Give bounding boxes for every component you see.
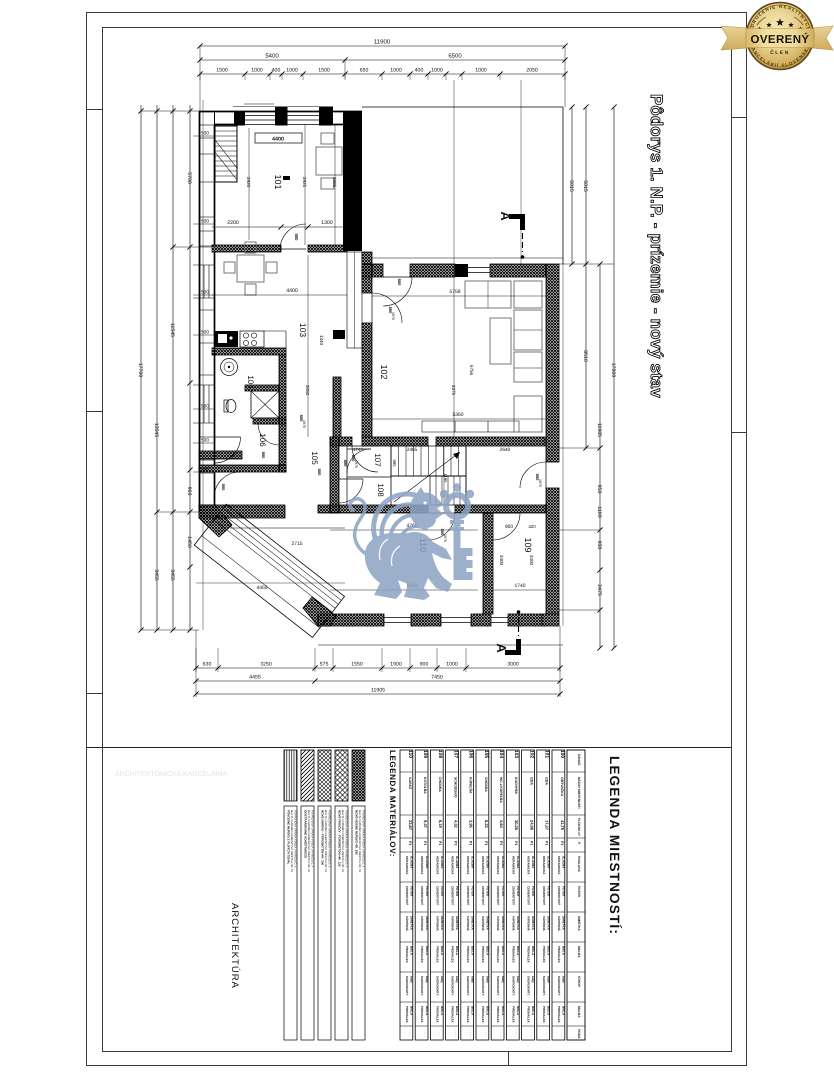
svg-text:POTER: POTER bbox=[470, 886, 474, 897]
svg-text:BIELA: BIELA bbox=[470, 946, 474, 956]
svg-text:P1: P1 bbox=[514, 841, 518, 845]
svg-text:BIELA: BIELA bbox=[516, 1006, 520, 1016]
svg-text:KERAMICKÁ: KERAMICKÁ bbox=[435, 856, 439, 875]
svg-text:500: 500 bbox=[329, 114, 334, 122]
svg-text:BIELA: BIELA bbox=[410, 1006, 414, 1016]
svg-text:420: 420 bbox=[528, 524, 536, 529]
svg-text:107: 107 bbox=[373, 453, 382, 467]
svg-text:· · · ·: · · · · bbox=[484, 1030, 488, 1037]
svg-text:POTER: POTER bbox=[425, 886, 429, 897]
svg-text:3455: 3455 bbox=[153, 569, 159, 581]
svg-text:11905: 11905 bbox=[371, 688, 385, 694]
svg-text:BIELA: BIELA bbox=[562, 946, 566, 956]
svg-text:SADROKART.: SADROKART. bbox=[557, 976, 561, 996]
svg-text:1500: 1500 bbox=[318, 68, 330, 74]
svg-text:3375: 3375 bbox=[451, 385, 456, 396]
svg-text:1900: 1900 bbox=[390, 662, 402, 668]
svg-text:800: 800 bbox=[294, 234, 299, 242]
svg-text:biely: biely bbox=[470, 976, 474, 983]
svg-text:CEMENTOVÝ: CEMENTOVÝ bbox=[527, 886, 531, 905]
svg-text:biely: biely bbox=[546, 976, 550, 983]
svg-text:KERAMICKÁ: KERAMICKÁ bbox=[542, 856, 546, 875]
svg-text:P1: P1 bbox=[438, 841, 442, 845]
svg-text:104: 104 bbox=[246, 375, 255, 389]
svg-text:17000: 17000 bbox=[610, 363, 616, 378]
svg-text:PREMALEX: PREMALEX bbox=[527, 1006, 531, 1023]
svg-text:P1: P1 bbox=[469, 841, 473, 845]
svg-text:4400: 4400 bbox=[272, 137, 284, 143]
svg-text:3455: 3455 bbox=[169, 569, 175, 581]
svg-text:800: 800 bbox=[221, 484, 226, 491]
svg-text:PREMALEX: PREMALEX bbox=[435, 946, 439, 963]
svg-text:4450: 4450 bbox=[256, 585, 267, 591]
svg-text:5400: 5400 bbox=[265, 53, 279, 60]
svg-text:· · · ·: · · · · bbox=[560, 1030, 564, 1037]
svg-text:OMIETKA: OMIETKA bbox=[562, 916, 566, 931]
svg-text:BIELA: BIELA bbox=[546, 1006, 550, 1016]
svg-text:500: 500 bbox=[201, 404, 209, 410]
svg-text:KERAMICKÁ: KERAMICKÁ bbox=[405, 856, 409, 875]
svg-text:biely: biely bbox=[486, 976, 490, 983]
svg-text:500: 500 bbox=[201, 330, 209, 336]
svg-text:105: 105 bbox=[483, 750, 489, 759]
svg-text:575: 575 bbox=[320, 662, 329, 668]
svg-text:BIELA: BIELA bbox=[486, 1006, 490, 1016]
svg-text:CEMENTOVÝ: CEMENTOVÝ bbox=[557, 886, 561, 905]
svg-text:SADROKART.: SADROKART. bbox=[405, 976, 409, 996]
svg-text:OMIETKA: OMIETKA bbox=[501, 916, 505, 931]
svg-text:SADROKART.: SADROKART. bbox=[496, 976, 500, 996]
svg-text:1000: 1000 bbox=[286, 68, 298, 74]
svg-text:BIELA: BIELA bbox=[501, 1006, 505, 1016]
svg-text:P1: P1 bbox=[529, 841, 533, 845]
svg-text:985: 985 bbox=[392, 460, 397, 468]
svg-text:POVRCHOVÁ ÚPRAVA PODĽA VÝKRESU: POVRCHOVÁ ÚPRAVA PODĽA VÝKRESU Č. 4 bbox=[310, 810, 314, 868]
svg-text:biely: biely bbox=[455, 976, 459, 983]
svg-text:PREMALEX: PREMALEX bbox=[451, 1006, 455, 1023]
svg-text:DLAŽBA: DLAŽBA bbox=[531, 856, 535, 869]
svg-text:1000: 1000 bbox=[390, 68, 402, 74]
svg-text:VÁPENNÁ: VÁPENNÁ bbox=[451, 916, 455, 932]
svg-text:ČLEN: ČLEN bbox=[770, 49, 790, 56]
svg-text:103: 103 bbox=[298, 323, 308, 337]
svg-text:3250: 3250 bbox=[260, 662, 272, 668]
svg-text:biely: biely bbox=[440, 976, 444, 983]
svg-text:BIELA: BIELA bbox=[455, 1006, 459, 1016]
svg-text:PÔVODNÉ MURIVO Z PLNÝCH TEHÁL: PÔVODNÉ MURIVO Z PLNÝCH TEHÁL bbox=[287, 810, 291, 865]
svg-text:108: 108 bbox=[376, 483, 385, 497]
svg-text:biely: biely bbox=[501, 976, 505, 983]
svg-text:400: 400 bbox=[272, 68, 281, 74]
svg-text:1970: 1970 bbox=[443, 534, 447, 542]
svg-text:BIELA: BIELA bbox=[486, 946, 490, 956]
svg-text:POVRCHOVÁ ÚPRAVA PODĽA VÝKRESU: POVRCHOVÁ ÚPRAVA PODĽA VÝKRESU Č. 4 bbox=[344, 810, 348, 868]
svg-text:OMIETKA: OMIETKA bbox=[486, 916, 490, 931]
svg-text:ODSTRAŇOVANÉ KONŠTRUKCIE: ODSTRAŇOVANÉ KONŠTRUKCIE bbox=[304, 810, 308, 858]
svg-text:102: 102 bbox=[379, 364, 389, 379]
svg-text:17,27: 17,27 bbox=[545, 820, 550, 831]
svg-text:1970: 1970 bbox=[538, 479, 542, 487]
svg-text:106: 106 bbox=[258, 433, 267, 447]
svg-text:1190: 1190 bbox=[596, 506, 602, 517]
svg-text:VÁPENNÁ: VÁPENNÁ bbox=[496, 916, 500, 932]
svg-text:950: 950 bbox=[596, 485, 602, 494]
svg-text:SCHODISKO: SCHODISKO bbox=[453, 777, 457, 798]
svg-text:CHODBA: CHODBA bbox=[438, 777, 442, 792]
svg-text:NOVÉ MURIVO - PÓROBETÓN HR. 30: NOVÉ MURIVO - PÓROBETÓN HR. 300 bbox=[321, 810, 325, 866]
svg-text:OMIETKA: OMIETKA bbox=[470, 916, 474, 931]
svg-text:500: 500 bbox=[201, 219, 209, 225]
svg-text:STROP: STROP bbox=[577, 976, 581, 988]
svg-text:POVRCHOVÁ ÚPRAVA PODĽA VÝKRESU: POVRCHOVÁ ÚPRAVA PODĽA VÝKRESU Č. 4 bbox=[293, 810, 297, 868]
svg-text:VÁPENNÁ: VÁPENNÁ bbox=[435, 916, 439, 932]
svg-text:OMIETKA: OMIETKA bbox=[440, 916, 444, 931]
svg-text:Pôdorys 1. N.P. - prízemie - n: Pôdorys 1. N.P. - prízemie - nový stav bbox=[647, 94, 666, 398]
svg-text:POTER: POTER bbox=[546, 886, 550, 897]
svg-text:KERAMICKÁ: KERAMICKÁ bbox=[527, 856, 531, 875]
svg-text:104: 104 bbox=[498, 750, 504, 759]
svg-text:VÁPENNÁ: VÁPENNÁ bbox=[542, 916, 546, 932]
svg-text:6,19: 6,19 bbox=[438, 820, 443, 829]
svg-text:PREMALEX: PREMALEX bbox=[466, 946, 470, 963]
svg-text:PREMALEX: PREMALEX bbox=[405, 946, 409, 963]
svg-text:1500: 1500 bbox=[216, 68, 228, 74]
svg-text:110: 110 bbox=[407, 750, 413, 758]
svg-text:POZN.: POZN. bbox=[577, 1029, 581, 1039]
svg-text:· · · ·: · · · · bbox=[423, 1030, 427, 1037]
svg-text:500: 500 bbox=[201, 438, 209, 444]
svg-text:PREMALEX: PREMALEX bbox=[435, 1006, 439, 1023]
svg-text:P1: P1 bbox=[453, 841, 457, 845]
svg-text:MALTA VÁPENNO-CEMENTOVÁ OMIETK: MALTA VÁPENNO-CEMENTOVÁ OMIETKA HR. 15 bbox=[290, 810, 294, 872]
svg-text:DLAŽBA: DLAŽBA bbox=[486, 856, 490, 869]
svg-text:100: 100 bbox=[559, 750, 565, 759]
svg-text:3400: 3400 bbox=[499, 555, 504, 566]
svg-text:17700: 17700 bbox=[137, 363, 143, 378]
svg-text:1300: 1300 bbox=[321, 220, 333, 226]
svg-text:3000: 3000 bbox=[507, 662, 519, 668]
svg-text:3925: 3925 bbox=[302, 177, 307, 188]
svg-text:PREMALEX: PREMALEX bbox=[481, 1006, 485, 1023]
svg-text:KUCHYŇA: KUCHYŇA bbox=[514, 777, 519, 795]
svg-text:KERAMICKÁ: KERAMICKÁ bbox=[496, 856, 500, 875]
svg-text:BIELA: BIELA bbox=[455, 946, 459, 956]
svg-text:CEMENTOVÝ: CEMENTOVÝ bbox=[405, 886, 409, 905]
svg-text:PODLAHA: PODLAHA bbox=[577, 856, 581, 872]
svg-text:8510: 8510 bbox=[582, 350, 588, 362]
svg-text:BIELA: BIELA bbox=[410, 946, 414, 956]
svg-text:biely: biely bbox=[562, 976, 566, 983]
svg-text:PREMALEX: PREMALEX bbox=[511, 1006, 515, 1023]
svg-text:BIELA: BIELA bbox=[425, 1006, 429, 1016]
svg-text:OVERENÝ: OVERENÝ bbox=[750, 32, 809, 46]
svg-text:PREMALEX: PREMALEX bbox=[420, 946, 424, 963]
svg-text:DLAŽBA: DLAŽBA bbox=[562, 856, 566, 869]
svg-text:POTER: POTER bbox=[516, 886, 520, 897]
svg-text:1970: 1970 bbox=[354, 460, 358, 468]
svg-text:OBÝVAČKA: OBÝVAČKA bbox=[560, 777, 565, 797]
svg-text:OMIETKA: OMIETKA bbox=[425, 916, 429, 931]
svg-text:DLAŽBA: DLAŽBA bbox=[546, 856, 550, 869]
svg-text:OMIETKA: OMIETKA bbox=[410, 916, 414, 931]
svg-text:SADROKART.: SADROKART. bbox=[542, 976, 546, 996]
svg-text:PREMALEX: PREMALEX bbox=[557, 1006, 561, 1023]
svg-text:5758: 5758 bbox=[449, 289, 460, 295]
svg-text:4,32: 4,32 bbox=[453, 820, 458, 829]
svg-text:CEMENTOVÝ: CEMENTOVÝ bbox=[481, 886, 485, 905]
svg-text:MAĽBA: MAĽBA bbox=[577, 1006, 581, 1018]
svg-text:5015: 5015 bbox=[568, 180, 574, 192]
svg-text:24,96: 24,96 bbox=[529, 820, 534, 831]
svg-text:101: 101 bbox=[273, 174, 283, 189]
svg-text:· · · ·: · · · · bbox=[438, 1030, 442, 1037]
svg-text:1745: 1745 bbox=[353, 447, 364, 452]
svg-text:PREMALEX: PREMALEX bbox=[496, 1006, 500, 1023]
svg-text:800: 800 bbox=[261, 452, 266, 459]
svg-text:POVRCHOVÁ ÚPRAVA PODĽA VÝKRESU: POVRCHOVÁ ÚPRAVA PODĽA VÝKRESU Č. 4 bbox=[327, 810, 331, 868]
svg-text:2475: 2475 bbox=[596, 584, 602, 596]
svg-text:BIELA: BIELA bbox=[531, 946, 535, 956]
svg-text:800: 800 bbox=[397, 279, 402, 286]
svg-text:VÁPENNÁ: VÁPENNÁ bbox=[527, 916, 531, 932]
svg-text:1340: 1340 bbox=[319, 335, 324, 346]
svg-text:DLAŽBA: DLAŽBA bbox=[470, 856, 474, 869]
svg-text:103: 103 bbox=[513, 750, 519, 759]
svg-text:500: 500 bbox=[201, 290, 209, 296]
svg-text:102: 102 bbox=[528, 750, 534, 759]
svg-text:PREMALEX: PREMALEX bbox=[481, 946, 485, 963]
svg-text:1740: 1740 bbox=[514, 583, 525, 589]
svg-text:SADROKART.: SADROKART. bbox=[527, 976, 531, 996]
svg-text:VÁPENNÁ: VÁPENNÁ bbox=[466, 916, 470, 932]
svg-text:1000: 1000 bbox=[446, 662, 458, 668]
svg-text:BIELA: BIELA bbox=[546, 946, 550, 956]
svg-text:· · · ·: · · · · bbox=[469, 1030, 473, 1037]
svg-text:500: 500 bbox=[239, 114, 244, 122]
svg-text:11545: 11545 bbox=[169, 323, 175, 337]
svg-text:DLAŽBA: DLAŽBA bbox=[410, 856, 414, 869]
svg-text:POVRCHOVÁ ÚPRAVA PODĽA VÝKRESU: POVRCHOVÁ ÚPRAVA PODĽA VÝKRESU Č. 4 bbox=[361, 810, 365, 868]
svg-text:109: 109 bbox=[422, 750, 428, 759]
svg-text:4400: 4400 bbox=[286, 288, 298, 294]
svg-text:OMIETKA: OMIETKA bbox=[531, 916, 535, 931]
svg-text:· · · ·: · · · · bbox=[545, 1030, 549, 1037]
svg-text:VÁPENNÁ: VÁPENNÁ bbox=[511, 916, 515, 932]
svg-text:PREMALEX: PREMALEX bbox=[527, 946, 531, 963]
svg-text:DLAŽBA: DLAŽBA bbox=[425, 856, 429, 869]
svg-text:KERAMICKÁ: KERAMICKÁ bbox=[481, 856, 485, 875]
svg-text:LEGENDA MIESTNOSTÍ:: LEGENDA MIESTNOSTÍ: bbox=[607, 756, 622, 935]
svg-text:POTER: POTER bbox=[455, 886, 459, 897]
svg-text:biely: biely bbox=[410, 976, 414, 983]
svg-text:SADROKART.: SADROKART. bbox=[466, 976, 470, 996]
svg-text:5360: 5360 bbox=[452, 412, 463, 418]
svg-text:VÁPENNÁ: VÁPENNÁ bbox=[405, 916, 409, 932]
svg-text:9,47: 9,47 bbox=[423, 820, 428, 829]
svg-text:3400: 3400 bbox=[529, 555, 534, 566]
svg-text:PREMALEX: PREMALEX bbox=[405, 1006, 409, 1023]
svg-text:2465: 2465 bbox=[407, 447, 418, 453]
svg-text:NOVÉ NOSNÉ MURIVO HR. 380: NOVÉ NOSNÉ MURIVO HR. 380 bbox=[355, 810, 359, 855]
svg-text:4455: 4455 bbox=[249, 675, 261, 681]
svg-text:P1: P1 bbox=[560, 841, 564, 845]
svg-text:A: A bbox=[494, 643, 509, 653]
svg-text:· · · ·: · · · · bbox=[408, 1030, 412, 1037]
svg-text:650: 650 bbox=[360, 68, 369, 74]
svg-text:PREMALEX: PREMALEX bbox=[420, 1006, 424, 1023]
svg-text:930: 930 bbox=[596, 541, 602, 550]
svg-text:1550: 1550 bbox=[351, 662, 363, 668]
svg-text:5015: 5015 bbox=[582, 180, 588, 192]
svg-text:6500: 6500 bbox=[448, 53, 462, 60]
svg-text:1970: 1970 bbox=[391, 312, 395, 320]
svg-text:2200: 2200 bbox=[227, 220, 239, 226]
svg-text:6756: 6756 bbox=[469, 365, 474, 376]
svg-text:OZNAČ.: OZNAČ. bbox=[577, 754, 581, 766]
svg-text:P1: P1 bbox=[484, 841, 488, 845]
svg-text:960: 960 bbox=[186, 487, 192, 496]
svg-text:KERAMICKÁ: KERAMICKÁ bbox=[420, 856, 424, 875]
svg-text:PREMALEX: PREMALEX bbox=[511, 946, 515, 963]
svg-text:7450: 7450 bbox=[431, 675, 443, 681]
svg-text:101: 101 bbox=[544, 750, 550, 759]
svg-text:KÚPEĽŇA: KÚPEĽŇA bbox=[469, 777, 474, 794]
svg-text:SADROKART.: SADROKART. bbox=[511, 976, 515, 996]
svg-text:30,26: 30,26 bbox=[514, 820, 519, 831]
svg-text:biely: biely bbox=[531, 976, 535, 983]
svg-text:MALTA VÁPENNO-CEMENTOVÁ OMIETK: MALTA VÁPENNO-CEMENTOVÁ OMIETKA HR. 15 bbox=[341, 810, 345, 872]
svg-text:PREMALEX: PREMALEX bbox=[542, 946, 546, 963]
svg-text:BIELA: BIELA bbox=[531, 1006, 535, 1016]
svg-text:OMIETKA: OMIETKA bbox=[516, 916, 520, 931]
svg-text:GARÁŽ: GARÁŽ bbox=[408, 777, 413, 789]
svg-text:DLAŽBA: DLAŽBA bbox=[501, 856, 505, 869]
svg-text:CEMENTOVÝ: CEMENTOVÝ bbox=[542, 886, 546, 905]
svg-text:ARCHITEKTONICKA KANCELARIA: ARCHITEKTONICKA KANCELARIA bbox=[115, 771, 228, 778]
svg-text:108: 108 bbox=[437, 750, 443, 759]
svg-text:KOTOLŇA: KOTOLŇA bbox=[423, 777, 428, 794]
svg-text:1970: 1970 bbox=[302, 420, 306, 428]
svg-text:· · · ·: · · · · bbox=[514, 1030, 518, 1037]
svg-text:IZBA: IZBA bbox=[529, 777, 533, 785]
svg-text:2050: 2050 bbox=[526, 68, 538, 74]
svg-text:PREMALEX: PREMALEX bbox=[557, 946, 561, 963]
svg-text:BIELA: BIELA bbox=[425, 946, 429, 956]
svg-text:POTER: POTER bbox=[562, 886, 566, 897]
svg-text:POTER: POTER bbox=[501, 886, 505, 897]
svg-text:BIELA: BIELA bbox=[470, 1006, 474, 1016]
svg-text:MAĽBA: MAĽBA bbox=[577, 946, 581, 958]
svg-text:1000: 1000 bbox=[475, 68, 487, 74]
svg-text:MALTA VÁPENNO-CEMENTOVÁ OMIETK: MALTA VÁPENNO-CEMENTOVÁ OMIETKA HR. 15 bbox=[324, 810, 328, 872]
svg-text:POTER: POTER bbox=[577, 886, 581, 898]
svg-text:800: 800 bbox=[317, 469, 322, 476]
svg-text:NÁZOV MIESTNOSTI: NÁZOV MIESTNOSTI bbox=[577, 777, 581, 809]
svg-text:1450: 1450 bbox=[186, 536, 192, 548]
svg-text:SADROKART.: SADROKART. bbox=[420, 976, 424, 996]
svg-text:LEGENDA MATERIÁLOV:: LEGENDA MATERIÁLOV: bbox=[388, 750, 398, 857]
svg-text:VÁPENNÁ: VÁPENNÁ bbox=[557, 916, 561, 932]
svg-text:POTER: POTER bbox=[410, 886, 414, 897]
svg-text:CEMENTOVÝ: CEMENTOVÝ bbox=[511, 886, 515, 905]
svg-text:11900: 11900 bbox=[374, 39, 391, 46]
svg-text:CHODBA: CHODBA bbox=[484, 777, 488, 792]
svg-text:PREMALEX: PREMALEX bbox=[466, 1006, 470, 1023]
svg-text:11985: 11985 bbox=[596, 423, 602, 437]
svg-text:800: 800 bbox=[343, 460, 348, 467]
svg-text:PREMALEX: PREMALEX bbox=[496, 946, 500, 963]
svg-text:OMIETKA: OMIETKA bbox=[455, 916, 459, 931]
svg-text:630: 630 bbox=[203, 662, 212, 668]
svg-text:1000: 1000 bbox=[431, 68, 443, 74]
svg-text:5700: 5700 bbox=[186, 172, 192, 184]
svg-text:P.: P. bbox=[577, 842, 581, 845]
svg-text:biely: biely bbox=[425, 976, 429, 983]
svg-text:P1: P1 bbox=[499, 841, 503, 845]
svg-text:2715: 2715 bbox=[291, 541, 302, 547]
svg-text:2640: 2640 bbox=[500, 447, 511, 453]
svg-text:KERAMICKÁ: KERAMICKÁ bbox=[466, 856, 470, 875]
svg-text:900: 900 bbox=[420, 662, 429, 668]
svg-text:3,95: 3,95 bbox=[469, 820, 474, 829]
svg-text:3925: 3925 bbox=[332, 177, 337, 188]
svg-text:400: 400 bbox=[415, 68, 424, 74]
svg-text:KERAMICKÁ: KERAMICKÁ bbox=[511, 856, 515, 875]
svg-text:4,64: 4,64 bbox=[499, 820, 504, 829]
svg-text:· · · ·: · · · · bbox=[529, 1030, 533, 1037]
svg-text:biely: biely bbox=[516, 976, 520, 983]
svg-text:P1: P1 bbox=[423, 841, 427, 845]
svg-text:107: 107 bbox=[452, 750, 458, 759]
svg-text:6,22: 6,22 bbox=[484, 820, 489, 829]
svg-text:PREMALEX: PREMALEX bbox=[542, 1006, 546, 1023]
svg-text:IZBA: IZBA bbox=[545, 777, 549, 785]
svg-text:OMIETKA: OMIETKA bbox=[577, 916, 581, 931]
svg-text:23,67: 23,67 bbox=[408, 820, 413, 831]
svg-text:500: 500 bbox=[201, 131, 209, 137]
svg-text:CEMENTOVÝ: CEMENTOVÝ bbox=[496, 886, 500, 905]
svg-text:POTER: POTER bbox=[440, 886, 444, 897]
svg-text:MALTA VÁPENNO-CEMENTOVÁ OMIETK: MALTA VÁPENNO-CEMENTOVÁ OMIETKA HR. 15 bbox=[358, 810, 362, 872]
svg-text:CEMENTOVÝ: CEMENTOVÝ bbox=[451, 886, 455, 905]
svg-text:1195: 1195 bbox=[443, 473, 448, 483]
svg-text:CEMENTOVÝ: CEMENTOVÝ bbox=[435, 886, 439, 905]
svg-text:105: 105 bbox=[310, 451, 319, 465]
svg-text:SADROKART.: SADROKART. bbox=[435, 976, 439, 996]
svg-text:BIELA: BIELA bbox=[516, 946, 520, 956]
svg-text:DLAŽBA: DLAŽBA bbox=[455, 856, 459, 869]
svg-text:KERAMICKÁ: KERAMICKÁ bbox=[557, 856, 561, 875]
svg-text:· · · ·: · · · · bbox=[453, 1030, 457, 1037]
svg-text:ARCHITEKTÚRA: ARCHITEKTÚRA bbox=[229, 903, 241, 989]
svg-text:WC a KÚPEĽŇA: WC a KÚPEĽŇA bbox=[499, 777, 504, 803]
svg-text:NOVÉ PRIEČKY - PÓROBETÓN HR. 1: NOVÉ PRIEČKY - PÓROBETÓN HR. 125 bbox=[338, 810, 342, 867]
svg-text:BIELA: BIELA bbox=[501, 946, 505, 956]
svg-text:BIELA: BIELA bbox=[440, 946, 444, 956]
svg-text:DLAŽBA: DLAŽBA bbox=[440, 856, 444, 869]
svg-text:BIELA: BIELA bbox=[440, 1006, 444, 1016]
svg-text:13545: 13545 bbox=[153, 423, 159, 438]
svg-text:3050: 3050 bbox=[305, 385, 310, 396]
svg-text:P1: P1 bbox=[545, 841, 549, 845]
svg-text:A: A bbox=[498, 211, 513, 221]
svg-text:CEMENTOVÝ: CEMENTOVÝ bbox=[466, 886, 470, 905]
svg-text:MALTA VÁPENNO-CEMENTOVÁ OMIETK: MALTA VÁPENNO-CEMENTOVÁ OMIETKA HR. 15 bbox=[307, 810, 311, 872]
svg-text:3920: 3920 bbox=[246, 177, 251, 188]
svg-text:BIELA: BIELA bbox=[562, 1006, 566, 1016]
svg-text:POTER: POTER bbox=[486, 886, 490, 897]
svg-text:P1: P1 bbox=[408, 841, 412, 845]
